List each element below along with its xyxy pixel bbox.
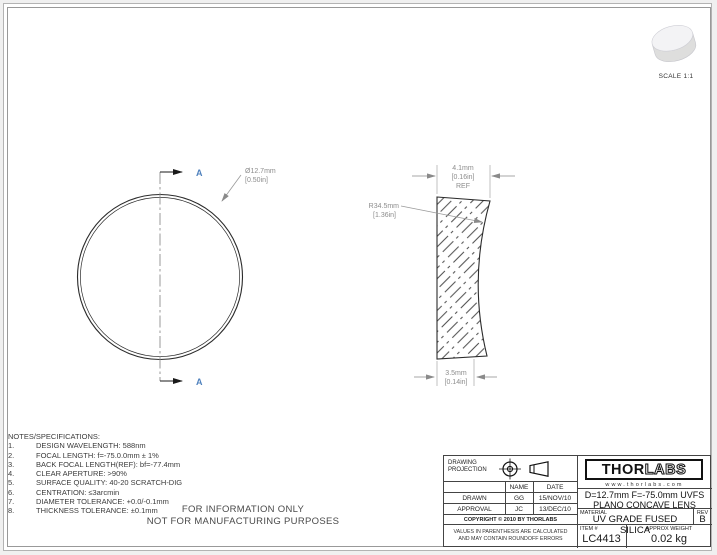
lens-cross-section bbox=[437, 197, 490, 359]
parenthesis-note: VALUES IN PARENTHESIS ARE CALCULATED AND… bbox=[444, 529, 577, 543]
section-label-bottom: A bbox=[196, 377, 203, 387]
note-item: 3.BACK FOCAL LENGTH(REF): bf=-77.4mm bbox=[8, 460, 308, 469]
drawing-title-line2: PLANO CONCAVE LENS bbox=[577, 500, 712, 510]
section-view: 4.1mm [0.16in] REF R34.5mm [1.36in] 3.5m… bbox=[369, 165, 515, 386]
drawing-title-line1: D=12.7mm F=-75.0mm UVFS bbox=[577, 490, 712, 500]
disclaimer: FOR INFORMATION ONLY NOT FOR MANUFACTURI… bbox=[90, 504, 396, 528]
weight-label: APPROX WEIGHT bbox=[626, 526, 712, 532]
disclaimer-line1: FOR INFORMATION ONLY bbox=[90, 504, 396, 516]
edge-thickness-ref: REF bbox=[456, 183, 470, 190]
note-item: 4.CLEAR APERTURE: >90% bbox=[8, 469, 308, 478]
drawn-label: DRAWN bbox=[444, 495, 505, 502]
item-number: LC4413 bbox=[577, 533, 626, 545]
section-label-top: A bbox=[196, 168, 203, 178]
approval-label: APPROVAL bbox=[444, 506, 505, 513]
drawing-projection-label: DRAWING PROJECTION bbox=[448, 460, 487, 474]
note-item: 5.SURFACE QUALITY: 40-20 SCRATCH-DIG bbox=[8, 478, 308, 487]
disclaimer-line2: NOT FOR MANUFACTURING PURPOSES bbox=[90, 516, 396, 528]
center-thickness-value: 3.5mm bbox=[445, 370, 467, 377]
projection-target-icon bbox=[498, 458, 522, 480]
rev-value: B bbox=[693, 514, 712, 525]
copyright-notice: COPYRIGHT © 2010 BY THORLABS bbox=[444, 517, 577, 523]
drawn-name: GG bbox=[505, 495, 533, 502]
thorlabs-logo: THORLABS bbox=[585, 459, 703, 480]
diameter-leader bbox=[222, 175, 241, 201]
table-header-name: NAME bbox=[505, 484, 533, 491]
note-item: 1.DESIGN WAVELENGTH: 588nm bbox=[8, 441, 308, 450]
notes-title: NOTES/SPECIFICATIONS: bbox=[8, 432, 308, 441]
projection-cone-icon bbox=[528, 461, 550, 477]
approval-date: 13/DEC/10 bbox=[533, 506, 577, 513]
edge-thickness-inches: [0.16in] bbox=[452, 174, 475, 181]
drawn-date: 15/NOV/10 bbox=[533, 495, 577, 502]
lens-3d-icon bbox=[649, 21, 699, 66]
center-thickness-inches: [0.14in] bbox=[445, 379, 468, 386]
diameter-value: Ø12.7mm bbox=[245, 168, 276, 175]
radius-inches: [1.36in] bbox=[373, 212, 396, 219]
diameter-value-inches: [0.50in] bbox=[245, 177, 268, 184]
edge-thickness-value: 4.1mm bbox=[452, 165, 474, 172]
item-label: ITEM # bbox=[580, 526, 598, 532]
table-header-date: DATE bbox=[533, 484, 577, 491]
weight-value: 0.02 kg bbox=[626, 533, 712, 545]
title-block: DRAWING PROJECTION NAME DATE DRAWN GG 15… bbox=[443, 455, 711, 547]
website-url: www.thorlabs.com bbox=[577, 482, 712, 488]
note-item: 2.FOCAL LENGTH: f=-75.0.0mm ± 1% bbox=[8, 451, 308, 460]
approval-name: JC bbox=[505, 506, 533, 513]
front-view: A A Ø12.7mm [0.50in] bbox=[78, 168, 276, 387]
drawing-sheet: A A Ø12.7mm [0.50in] 4.1mm [0.16in] REF … bbox=[0, 0, 717, 555]
note-item: 6.CENTRATION: ≤3arcmin bbox=[8, 488, 308, 497]
scale-label: SCALE 1:1 bbox=[648, 73, 704, 80]
radius-value: R34.5mm bbox=[369, 203, 400, 210]
